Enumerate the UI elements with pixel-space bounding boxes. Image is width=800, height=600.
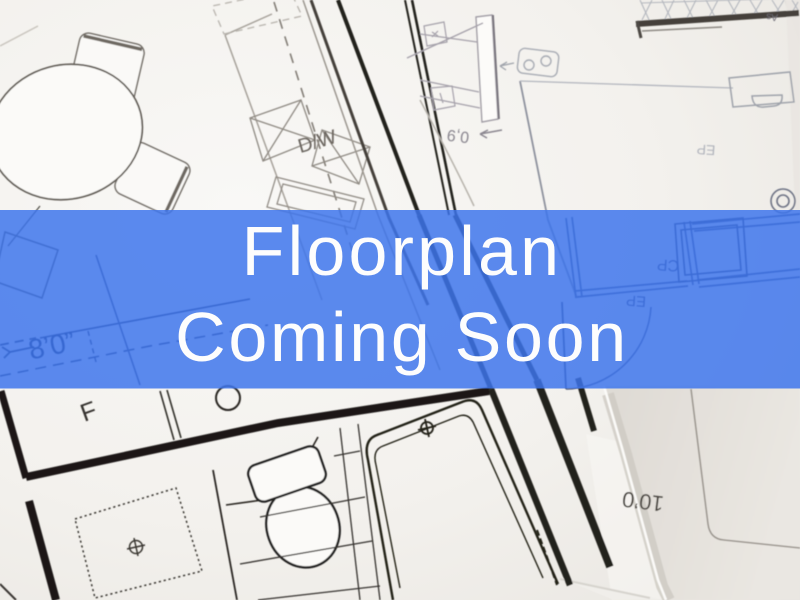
svg-text:As: As	[766, 11, 779, 23]
svg-text:10’0: 10’0	[621, 487, 665, 517]
svg-text:Floorplan: Floorplan	[242, 212, 563, 290]
svg-text:0,9: 0,9	[446, 126, 470, 146]
svg-text:Coming Soon: Coming Soon	[175, 298, 629, 376]
svg-text:EP: EP	[696, 141, 716, 158]
